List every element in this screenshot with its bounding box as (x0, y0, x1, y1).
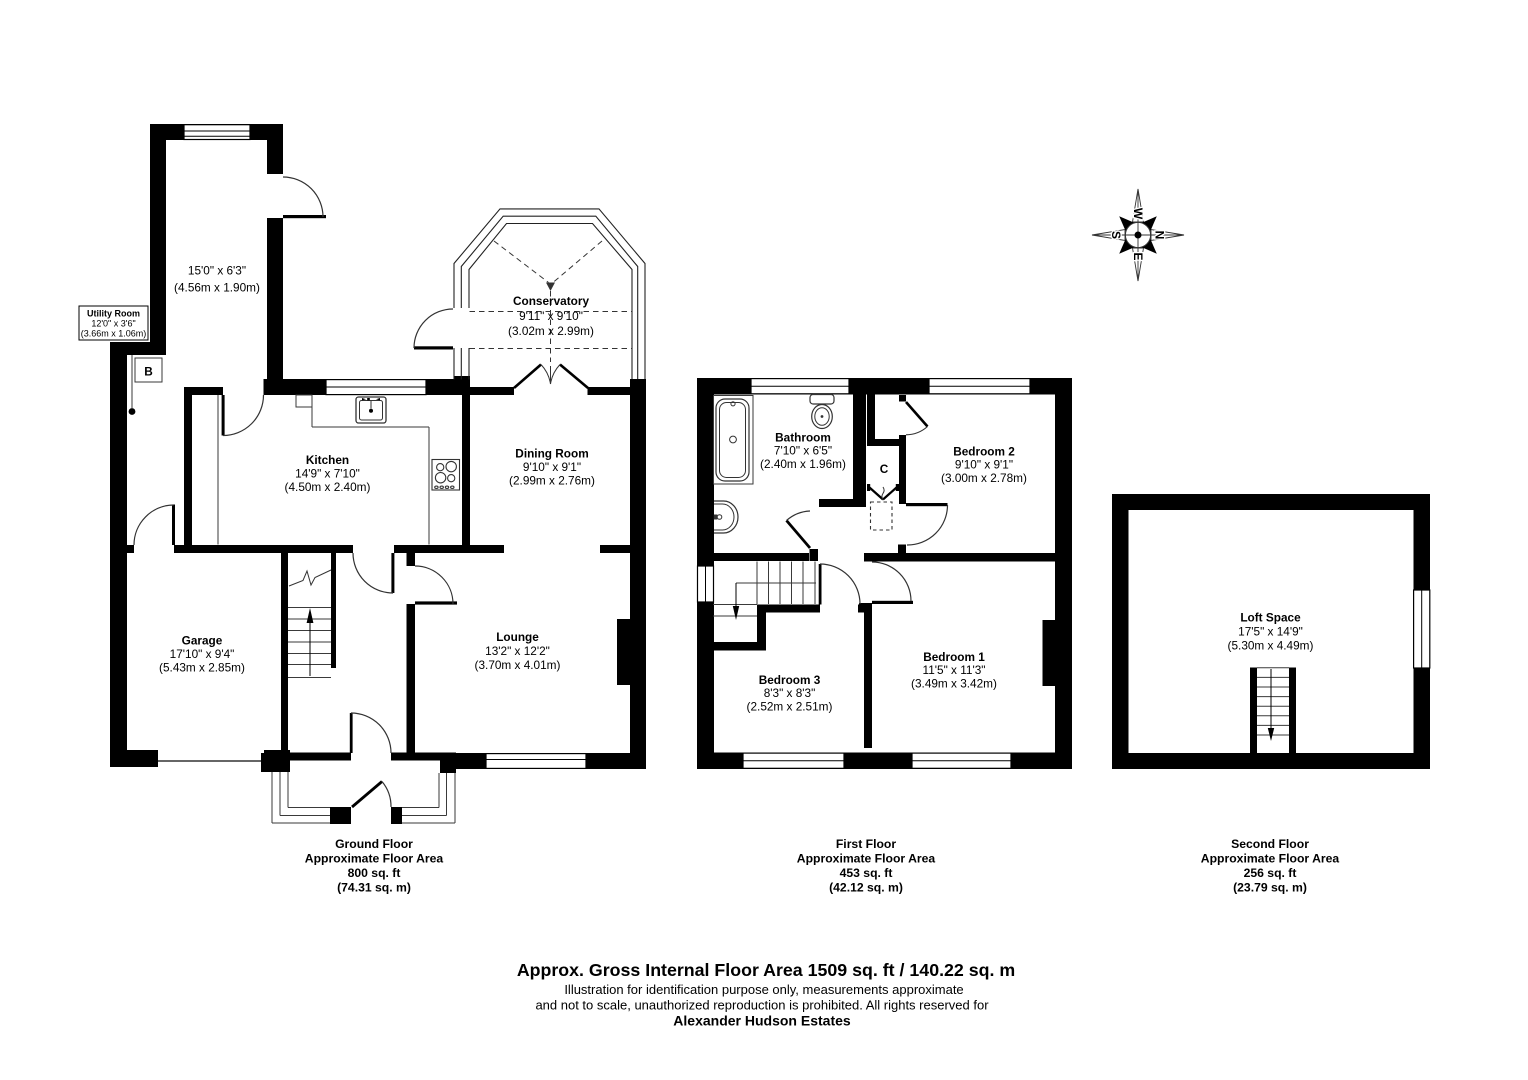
svg-text:C: C (880, 462, 889, 476)
svg-text:First Floor: First Floor (836, 837, 897, 851)
svg-text:(4.50m x 2.40m): (4.50m x 2.40m) (285, 480, 371, 494)
svg-text:Approximate Floor Area: Approximate Floor Area (797, 852, 936, 866)
svg-text:(3.00m x 2.78m): (3.00m x 2.78m) (941, 471, 1027, 485)
svg-text:Bedroom 1: Bedroom 1 (923, 650, 985, 664)
svg-text:(2.99m x 2.76m): (2.99m x 2.76m) (509, 474, 595, 488)
svg-text:Dining Room: Dining Room (515, 447, 588, 461)
svg-text:Kitchen: Kitchen (306, 453, 349, 467)
svg-text:Loft Space: Loft Space (1240, 611, 1301, 625)
svg-text:Utility Room: Utility Room (87, 309, 140, 319)
svg-text:and not to scale, unauthorized: and not to scale, unauthorized reproduct… (535, 998, 989, 1013)
svg-text:9'10" x 9'1": 9'10" x 9'1" (955, 458, 1013, 472)
svg-text:8'3" x 8'3": 8'3" x 8'3" (764, 686, 816, 700)
svg-text:Conservatory: Conservatory (513, 294, 589, 308)
svg-text:17'10" x 9'4": 17'10" x 9'4" (170, 647, 235, 661)
svg-text:256 sq. ft: 256 sq. ft (1244, 866, 1297, 880)
svg-text:7'10" x 6'5": 7'10" x 6'5" (774, 444, 832, 458)
svg-text:Second Floor: Second Floor (1231, 837, 1309, 851)
svg-text:Bedroom 2: Bedroom 2 (953, 445, 1015, 459)
svg-text:Approx. Gross Internal Floor A: Approx. Gross Internal Floor Area 1509 s… (517, 960, 1015, 980)
svg-text:Approximate Floor Area: Approximate Floor Area (1201, 852, 1340, 866)
svg-text:Bedroom 3: Bedroom 3 (759, 673, 821, 687)
svg-text:(3.70m x 4.01m): (3.70m x 4.01m) (475, 658, 561, 672)
svg-text:800 sq. ft: 800 sq. ft (348, 866, 401, 880)
svg-text:453 sq. ft: 453 sq. ft (840, 866, 893, 880)
svg-text:Lounge: Lounge (496, 630, 539, 644)
svg-text:(2.52m x 2.51m): (2.52m x 2.51m) (747, 700, 833, 714)
svg-text:9'11" x 9'10": 9'11" x 9'10" (519, 309, 583, 323)
svg-text:15'0" x 6'3": 15'0" x 6'3" (188, 264, 246, 278)
svg-text:(23.79 sq. m): (23.79 sq. m) (1233, 881, 1307, 895)
svg-text:S: S (1109, 231, 1123, 239)
svg-text:9'10" x 9'1": 9'10" x 9'1" (523, 460, 581, 474)
svg-text:17'5" x 14'9": 17'5" x 14'9" (1238, 625, 1303, 639)
svg-text:E: E (1131, 252, 1145, 260)
svg-text:Garage: Garage (182, 634, 223, 648)
svg-text:(3.49m x 3.42m): (3.49m x 3.42m) (911, 677, 997, 691)
svg-text:Ground Floor: Ground Floor (335, 837, 413, 851)
svg-text:(3.02m x 2.99m): (3.02m x 2.99m) (508, 324, 594, 338)
svg-text:(4.56m x 1.90m): (4.56m x 1.90m) (174, 281, 260, 295)
svg-text:(2.40m x 1.96m): (2.40m x 1.96m) (760, 457, 846, 471)
svg-text:Illustration for identificatio: Illustration for identification purpose … (564, 982, 963, 997)
svg-text:12'0" x 3'6": 12'0" x 3'6" (91, 319, 135, 329)
svg-text:11'5" x 11'3": 11'5" x 11'3" (923, 663, 986, 677)
svg-text:B: B (144, 365, 153, 379)
svg-text:W: W (1131, 208, 1145, 220)
svg-text:Alexander Hudson Estates: Alexander Hudson Estates (673, 1013, 851, 1029)
svg-text:(74.31 sq. m): (74.31 sq. m) (337, 881, 411, 895)
svg-text:13'2" x 12'2": 13'2" x 12'2" (485, 644, 550, 658)
svg-text:(3.66m x 1.06m): (3.66m x 1.06m) (81, 329, 147, 339)
svg-text:(5.43m x 2.85m): (5.43m x 2.85m) (159, 661, 245, 675)
svg-text:(42.12 sq. m): (42.12 sq. m) (829, 881, 903, 895)
svg-text:Approximate Floor Area: Approximate Floor Area (305, 852, 444, 866)
svg-text:Bathroom: Bathroom (775, 431, 831, 445)
svg-text:14'9" x 7'10": 14'9" x 7'10" (295, 467, 360, 481)
svg-text:(5.30m x 4.49m): (5.30m x 4.49m) (1228, 639, 1314, 653)
svg-text:N: N (1153, 231, 1167, 240)
